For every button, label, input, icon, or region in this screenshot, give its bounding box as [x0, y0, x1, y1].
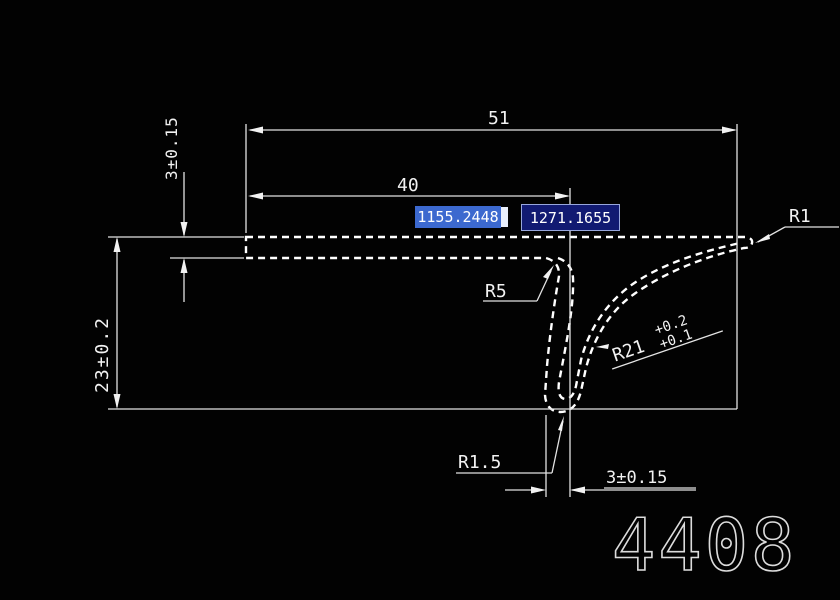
coord-input-x[interactable]: 1155.2448 [415, 206, 501, 228]
text-cursor [501, 207, 508, 227]
arrow-r21 [596, 344, 609, 349]
arrow-3top-up [181, 258, 188, 273]
radius-label-r21-group: R21 +0.2 +0.1 [602, 303, 723, 370]
arrow-3top-down [181, 222, 188, 237]
cad-canvas: 51 40 3±0.15 23±0.2 3±0.15 R5 R1 R1.5 R2… [0, 0, 840, 600]
dim-text-3top: 3±0.15 [162, 116, 181, 180]
arrow-3bot-right [531, 487, 546, 494]
coord-input-y[interactable]: 1271.1655 [521, 204, 620, 231]
radius-text-r15: R1.5 [458, 452, 501, 473]
dim-text-40: 40 [397, 175, 419, 196]
radius-text-r1: R1 [789, 206, 811, 227]
arrow-40-left [248, 193, 263, 200]
arrow-23-bottom [114, 394, 121, 409]
radius-text-r5: R5 [485, 281, 507, 302]
radius-text-r21: R21 [610, 336, 648, 366]
dim-text-3bot: 3±0.15 [606, 468, 667, 488]
arrow-51-left [248, 127, 263, 134]
dim-text-23: 23±0.2 [92, 316, 113, 393]
arrow-3bot-left [570, 487, 585, 494]
arrow-r1 [755, 234, 770, 243]
part-number-stamp: 4408 [612, 503, 797, 587]
dim-text-51: 51 [488, 108, 510, 129]
arrow-40-right [555, 193, 570, 200]
arrow-23-top [114, 237, 121, 252]
arrow-51-right [722, 127, 737, 134]
arrow-r5 [543, 265, 554, 279]
